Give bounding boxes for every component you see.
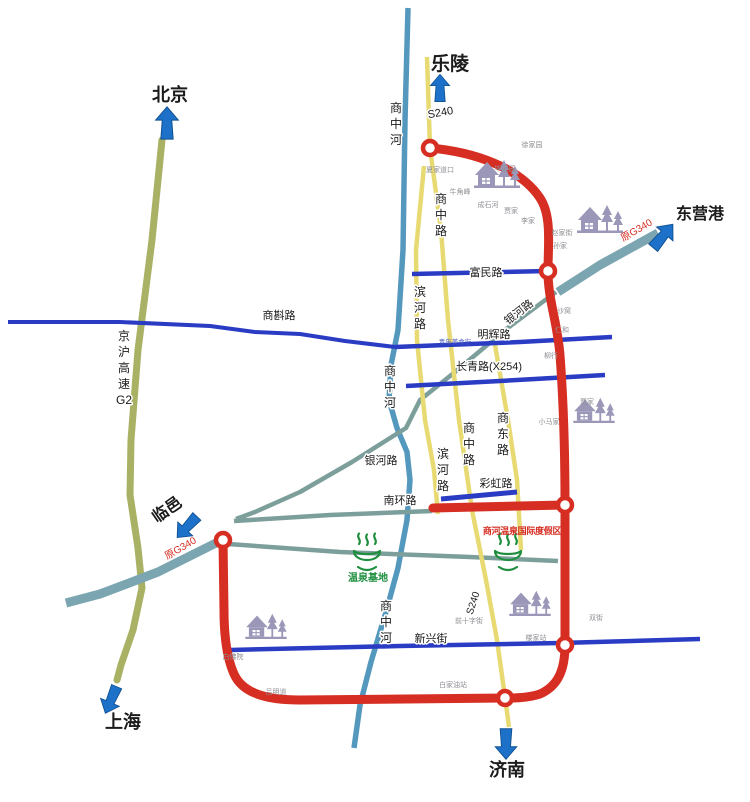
label-shangzhong-road-north: 商中路 [435, 191, 447, 238]
road-junction-node [558, 498, 572, 512]
village-qianshizijie: 前十字街 [455, 616, 483, 625]
label-minghui-road: 明辉路 [478, 328, 511, 341]
label-wenquan-jidi: 温泉基地 [348, 571, 388, 584]
label-shangzhonghe-middle: 商中河 [384, 363, 396, 410]
label-shangzhonghe-south: 商中河 [380, 598, 392, 645]
village-lvmingdao: 吕明道 [266, 687, 287, 696]
label-binhe-road-north: 滨河路 [414, 284, 426, 331]
label-shangdong-road: 商东路 [497, 410, 509, 457]
schematic-road-map: 北京乐陵东营港临邑上海济南S240S240商中河商中河商中河商中路商中路滨河路滨… [0, 0, 750, 802]
road-junction-node [558, 638, 572, 652]
village-xiajiadaokou: 夏家道口 [426, 165, 454, 174]
road-junction-node [423, 141, 437, 155]
dest-leling: 乐陵 [431, 52, 470, 75]
label-yinhe-road-southwest: 银河路 [365, 453, 398, 467]
village-jiajia-east: 贾家 [580, 397, 594, 406]
map-background [0, 0, 750, 802]
label-fumin-road: 富民路 [470, 265, 503, 279]
label-nanhuan-road: 南环路 [384, 494, 417, 507]
village-chengshihe: 成石河 [478, 200, 499, 209]
label-xinxing-street: 新兴街 [415, 631, 448, 645]
village-xujiayuan: 徐家园 [522, 140, 543, 149]
map-canvas: 北京乐陵东营港临邑上海济南S240S240商中河商中河商中河商中路商中路滨河路滨… [0, 0, 750, 802]
road-resort-access-road [433, 505, 565, 508]
village-shawo: 沙窝 [557, 306, 571, 315]
label-qingnian-food-street: 青年美食街 [439, 337, 472, 346]
road-junction-node [216, 533, 230, 547]
village-baijiayouzhan: 白家油站 [439, 680, 467, 689]
road-junction-node [498, 691, 512, 705]
label-shangzhen-road: 商斟路 [263, 308, 296, 322]
village-bijiayuan: 毕家园 [495, 164, 516, 173]
village-jiajia-north: 贾家 [504, 206, 518, 215]
village-zhaojiajie: 赵家街 [552, 228, 573, 237]
dest-dongyinggang: 东营港 [676, 204, 725, 223]
dest-jinan: 济南 [489, 759, 525, 780]
village-baifoyuan: 白佛院 [223, 652, 244, 661]
village-shuangjie: 双街 [589, 613, 603, 622]
village-liuhang: 柳行 [544, 351, 558, 360]
village-renhe: 仁和 [555, 325, 569, 334]
village-niujiaofeng: 牛角峰 [450, 187, 471, 196]
dest-shanghai: 上海 [105, 711, 141, 732]
village-loujiazhan: 楼家站 [526, 633, 547, 642]
road-junction-node [541, 264, 555, 278]
dest-beijing: 北京 [152, 84, 188, 105]
label-changqing-road: 长青路(X254) [456, 360, 522, 373]
label-shangzhong-road-south: 商中路 [463, 420, 475, 467]
label-shangzhonghe-north: 商中河 [390, 100, 402, 147]
label-resort: 商河温泉国际度假区 [483, 525, 562, 536]
village-xiaomajia: 小马家 [539, 417, 560, 426]
village-lijia: 李家 [521, 216, 535, 225]
village-sunjia: 孙家 [553, 241, 567, 250]
label-binhe-road-south: 滨河路 [437, 446, 449, 493]
label-caihong-road: 彩虹路 [480, 477, 513, 490]
label-jinghu-g2: 京沪高速G2 [116, 329, 132, 407]
